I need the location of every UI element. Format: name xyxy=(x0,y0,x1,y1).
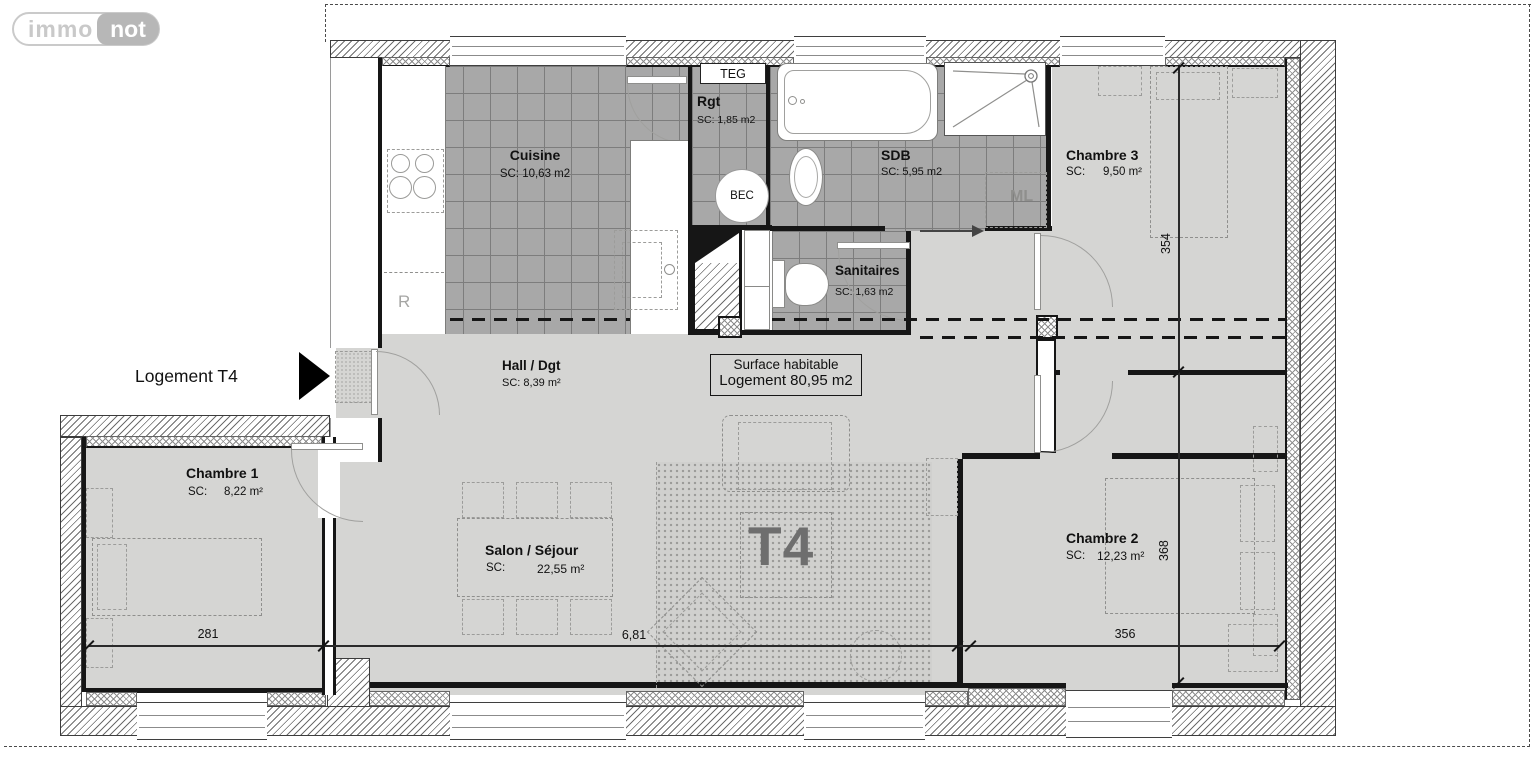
room-area-rgt: SC: 1,85 m2 xyxy=(697,114,755,126)
logo-not-badge: not xyxy=(97,13,159,45)
chambre1-door-leaf xyxy=(291,443,363,450)
teg-label: TEG xyxy=(720,67,746,81)
sdb-sliding-door-arrow-icon xyxy=(920,230,978,232)
window xyxy=(450,702,626,740)
nightstand xyxy=(1098,66,1142,96)
room-area-value-chambre3: 9,50 m² xyxy=(1103,166,1142,178)
shower xyxy=(944,62,1046,136)
window xyxy=(794,36,926,66)
nightstand xyxy=(1232,68,1278,98)
room-area-value-chambre2: 12,23 m² xyxy=(1097,549,1144,563)
entry-doormat xyxy=(335,351,372,403)
logo-not-text: not xyxy=(110,16,146,42)
sanitaires-door-leaf xyxy=(837,242,910,249)
wall-bottom-insulation xyxy=(86,692,137,706)
entry-arrow-icon xyxy=(299,352,330,400)
wall-bottom-insulation xyxy=(925,691,968,706)
window xyxy=(804,702,925,740)
wall-sdb-bottom xyxy=(770,226,885,231)
unit-type-watermark: T4 xyxy=(748,514,814,578)
dimension-salon-width: 6,81 xyxy=(612,628,656,642)
fridge-label: R xyxy=(398,292,410,312)
floor-plan: R TEG BEC ML xyxy=(0,0,1535,759)
stove-burner-icon xyxy=(413,176,436,199)
wall-bottom-insulation xyxy=(1172,690,1285,706)
bathtub xyxy=(777,63,938,141)
surface-box-line2: Logement 80,95 m2 xyxy=(711,372,861,389)
room-area-value-salon: 22,55 m² xyxy=(537,562,584,576)
boundary-line-right xyxy=(1529,4,1530,747)
room-area-hall: SC: 8,39 m² xyxy=(502,377,561,389)
nightstand xyxy=(86,488,113,538)
room-label-sanitaires: Sanitaires xyxy=(835,263,900,278)
window xyxy=(1060,36,1165,66)
window xyxy=(1066,690,1172,738)
wall-chambre2-top xyxy=(962,453,1040,459)
room-area-label-chambre2: SC: xyxy=(1066,550,1085,562)
window xyxy=(137,702,267,740)
wall-chambre3-bottom xyxy=(1128,370,1285,375)
armchair xyxy=(1228,624,1278,672)
stove-burner-icon xyxy=(415,154,434,173)
teg-box: TEG xyxy=(700,63,766,84)
sdb-sink xyxy=(789,148,823,206)
boundary-line-top xyxy=(325,4,1531,5)
nightstand xyxy=(1253,426,1278,472)
ceiling-line xyxy=(920,336,1285,339)
bed-pillow xyxy=(1240,552,1275,610)
boundary-line-bottom xyxy=(4,746,1530,747)
bec-circle: BEC xyxy=(715,169,769,223)
room-area-label-chambre1: SC: xyxy=(188,486,207,498)
bed-pillow xyxy=(97,544,127,610)
room-label-salon: Salon / Séjour xyxy=(485,542,578,558)
room-area-sdb: SC: 5,95 m2 xyxy=(881,166,942,178)
room-area-label-chambre3: SC: xyxy=(1066,166,1085,178)
room-label-chambre1: Chambre 1 xyxy=(186,465,258,481)
window xyxy=(450,36,626,66)
room-area-label-salon: SC: xyxy=(486,562,505,574)
wall-bottom-insulation xyxy=(968,688,1066,706)
chair xyxy=(516,482,558,518)
toilet-tank xyxy=(772,260,785,308)
party-wall xyxy=(330,58,382,348)
dimension-chambre1-width: 281 xyxy=(188,627,228,641)
bed-pillow xyxy=(1240,485,1275,542)
side-furniture xyxy=(926,458,958,516)
dimension-chambre2-width: 356 xyxy=(1103,627,1147,641)
sdb-sliding-door-arrowhead-icon xyxy=(972,225,984,237)
chair xyxy=(462,482,504,518)
washing-machine-label: ML xyxy=(1010,188,1033,206)
kitchen-faucet-icon xyxy=(664,264,675,275)
unit-label: Logement T4 xyxy=(135,366,238,387)
pouf xyxy=(850,630,902,682)
kitchen-sink-bowl xyxy=(622,242,662,298)
bed xyxy=(1105,478,1255,614)
wall-wing-top xyxy=(60,415,330,437)
room-label-chambre2: Chambre 2 xyxy=(1066,530,1138,546)
salon-carpet-divider xyxy=(656,462,657,688)
room-label-sdb: SDB xyxy=(881,147,911,163)
room-area-cuisine: SC: 10,63 m2 xyxy=(470,168,600,180)
chair xyxy=(570,482,612,518)
room-label-cuisine: Cuisine xyxy=(470,147,600,163)
room-label-chambre3: Chambre 3 xyxy=(1066,147,1138,163)
toilet-bowl xyxy=(785,263,829,306)
logo-immo-text: immo xyxy=(28,16,93,43)
chambre3-door-leaf xyxy=(1034,233,1041,310)
room-label-rgt: Rgt xyxy=(697,93,720,109)
wall-bottom-insulation xyxy=(626,691,804,706)
dimension-chambre2-depth: 368 xyxy=(1157,505,1171,561)
shaft-post xyxy=(718,316,742,338)
wall-bottom-insulation xyxy=(267,692,326,706)
chair xyxy=(516,599,558,635)
dimension-line-vertical xyxy=(1178,68,1180,683)
boundary-line-left xyxy=(325,4,326,42)
bed-pillow xyxy=(1156,72,1220,100)
stove-burner-icon xyxy=(389,176,412,199)
wall-right-insulation xyxy=(1285,58,1300,700)
dimension-line-horizontal xyxy=(88,645,1280,647)
wall-bottom-edge xyxy=(1172,683,1288,688)
bec-label: BEC xyxy=(730,190,754,202)
cuisine-door-leaf xyxy=(627,76,687,84)
wall-wing-top-insulation xyxy=(86,436,322,448)
room-area-value-chambre1: 8,22 m² xyxy=(224,486,263,498)
kitchen-counter-divider xyxy=(384,272,444,273)
stove-burner-icon xyxy=(391,154,410,173)
immonot-logo: immo not xyxy=(12,12,160,46)
wall-wing-left xyxy=(60,437,82,707)
surface-box-line1: Surface habitable xyxy=(711,357,861,372)
ceiling-line xyxy=(772,318,1285,321)
chambre2-door-leaf xyxy=(1034,375,1041,453)
surface-box: Surface habitable Logement 80,95 m2 xyxy=(710,354,862,396)
chair xyxy=(570,599,612,635)
room-label-hall: Hall / Dgt xyxy=(502,358,561,373)
dimension-chambre3-depth: 354 xyxy=(1159,198,1173,254)
room-area-sanitaires: SC: 1,63 m2 xyxy=(835,286,893,298)
sofa-seat xyxy=(738,422,832,490)
chair xyxy=(462,599,504,635)
wall-right xyxy=(1300,40,1336,712)
wall-bottom-edge xyxy=(336,682,958,688)
door-pocket xyxy=(744,230,770,330)
